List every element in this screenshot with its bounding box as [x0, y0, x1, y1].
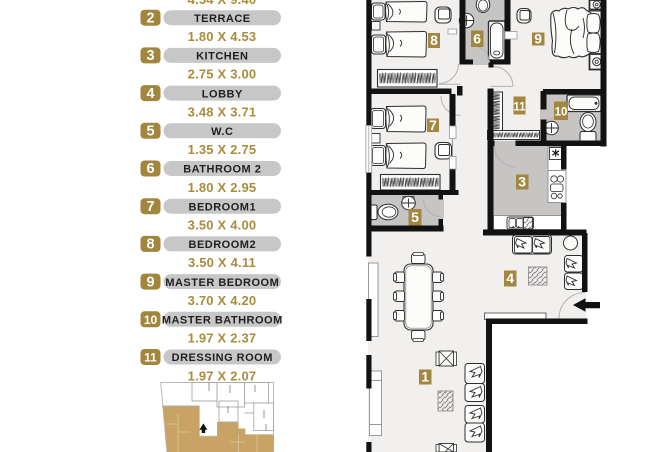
svg-text:3.50 X 4.11: 3.50 X 4.11 [188, 255, 256, 270]
svg-text:7: 7 [146, 199, 154, 215]
svg-text:1.97 X 2.37: 1.97 X 2.37 [188, 331, 257, 346]
svg-text:1.80 X 2.95: 1.80 X 2.95 [188, 180, 257, 195]
svg-text:BEDROOM1: BEDROOM1 [189, 201, 257, 213]
svg-text:1.80 X 4.53: 1.80 X 4.53 [188, 29, 257, 44]
svg-text:4.54 X 9.40: 4.54 X 9.40 [188, 0, 257, 7]
svg-text:LOBBY: LOBBY [202, 88, 243, 100]
svg-text:6: 6 [473, 31, 481, 47]
svg-text:2.75 X 3.00: 2.75 X 3.00 [188, 67, 257, 82]
svg-text:3.48 X 3.71: 3.48 X 3.71 [188, 104, 257, 119]
svg-text:MASTER BATHROOM: MASTER BATHROOM [162, 315, 283, 327]
svg-text:9: 9 [146, 274, 154, 290]
svg-text:6: 6 [146, 161, 154, 177]
svg-text:4: 4 [146, 86, 154, 102]
svg-text:3.70 X 4.20: 3.70 X 4.20 [188, 293, 257, 308]
svg-text:10: 10 [144, 313, 158, 327]
svg-text:5: 5 [411, 209, 419, 225]
svg-text:8: 8 [146, 237, 154, 253]
svg-text:11: 11 [144, 351, 157, 365]
svg-text:BEDROOM2: BEDROOM2 [189, 239, 257, 251]
svg-text:KITCHEN: KITCHEN [196, 51, 248, 63]
svg-text:BATHROOM 2: BATHROOM 2 [183, 164, 261, 176]
svg-text:1.35 X 2.75: 1.35 X 2.75 [188, 142, 257, 157]
svg-text:3: 3 [518, 174, 526, 190]
svg-text:9: 9 [534, 31, 542, 47]
svg-text:DRESSING ROOM: DRESSING ROOM [172, 352, 273, 364]
svg-text:8: 8 [430, 32, 438, 48]
svg-text:3: 3 [146, 48, 154, 64]
svg-text:MASTER BEDROOM: MASTER BEDROOM [165, 277, 279, 289]
svg-text:5: 5 [146, 124, 154, 140]
svg-text:2: 2 [146, 10, 154, 26]
svg-text:7: 7 [429, 117, 437, 133]
svg-text:10: 10 [555, 107, 568, 119]
svg-text:TERRACE: TERRACE [194, 13, 251, 25]
svg-text:1.97 X 2.07: 1.97 X 2.07 [188, 368, 257, 383]
svg-text:1: 1 [421, 369, 429, 385]
svg-text:4: 4 [506, 270, 514, 286]
svg-text:11: 11 [513, 102, 526, 114]
svg-text:W.C: W.C [211, 126, 233, 138]
svg-text:3.50 X 4.00: 3.50 X 4.00 [188, 218, 257, 233]
